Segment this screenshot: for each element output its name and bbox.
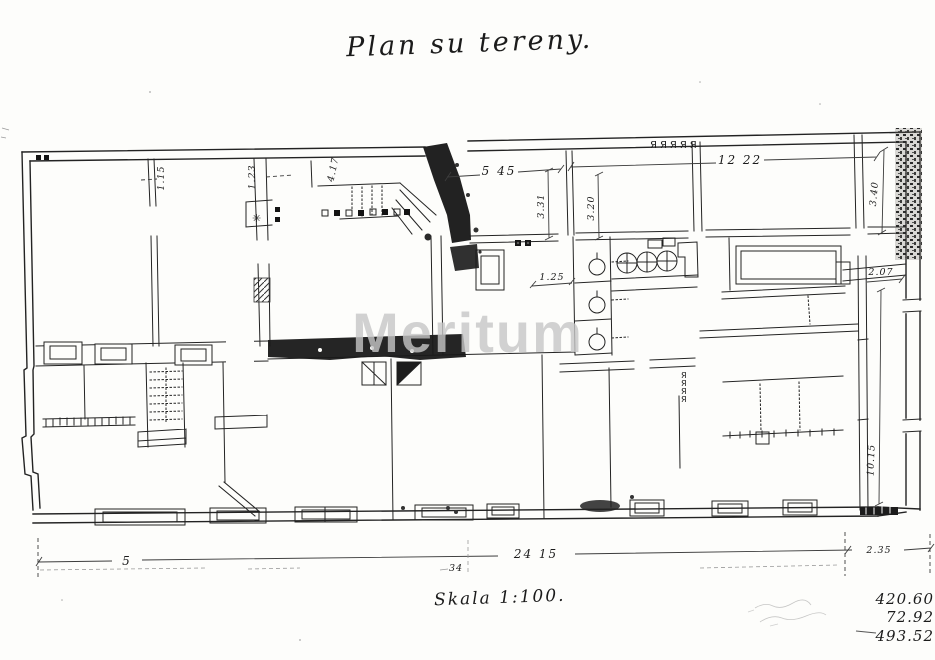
watermark: Meritum	[352, 301, 584, 364]
staircase-upper	[318, 183, 436, 234]
total-line-1: 420.60	[875, 590, 935, 608]
interior-walls-top-left	[36, 155, 312, 346]
total-line-2: 72.92	[886, 608, 934, 626]
dim-bottom-note: 34	[449, 563, 463, 574]
window-symbols-midwall	[44, 342, 212, 365]
stair-baluster-row	[322, 209, 410, 216]
dim-wall-123: 1.23	[247, 164, 258, 189]
interior-walls-lower-right	[560, 358, 843, 444]
dim-room-331: 3.31	[536, 193, 547, 218]
floor-plan-drawing: ЯЯЯЯЯ Я Я Я Я ✳ 5 45 12 22 3.31 3.20 3.4…	[0, 0, 935, 660]
vent-row-icon: ЯЯЯЯЯ	[650, 140, 700, 151]
boiler-room	[612, 238, 698, 291]
interior-walls-lower-left	[43, 363, 267, 516]
scale-label: Skala 1:100.	[434, 586, 566, 611]
dim-bottom-left: 5	[122, 554, 132, 568]
dim-room-340: 3.40	[868, 181, 881, 207]
dim-wall-115: 1.15	[156, 165, 167, 190]
dim-room-320: 3.20	[586, 195, 597, 220]
dim-top-right-width: 12 22	[718, 153, 762, 167]
dim-strip-1015: 10.15	[865, 444, 877, 477]
right-storage-room	[700, 238, 858, 338]
dim-bottom-total: 24 15	[513, 547, 558, 561]
dim-stair-417: 4.17	[325, 156, 341, 184]
plan-title: Plan su tereny.	[345, 24, 594, 64]
dim-corridor-125: 1.25	[539, 272, 564, 283]
scanned-floor-plan-page: ЯЯЯЯЯ Я Я Я Я ✳ 5 45 12 22 3.31 3.20 3.4…	[0, 0, 935, 660]
interior-walls-centre	[36, 236, 680, 520]
dim-entry-width: 5 45	[482, 164, 517, 178]
total-line-3: 493.52	[875, 627, 935, 645]
vent-mark-icon: Я	[681, 395, 687, 404]
star-icon: ✳	[252, 213, 261, 225]
dim-passage-207: 2.07	[867, 267, 893, 278]
handwritten-totals: 420.60 72.92 493.52	[748, 590, 934, 645]
dim-bottom-right: 2.35	[865, 545, 891, 556]
